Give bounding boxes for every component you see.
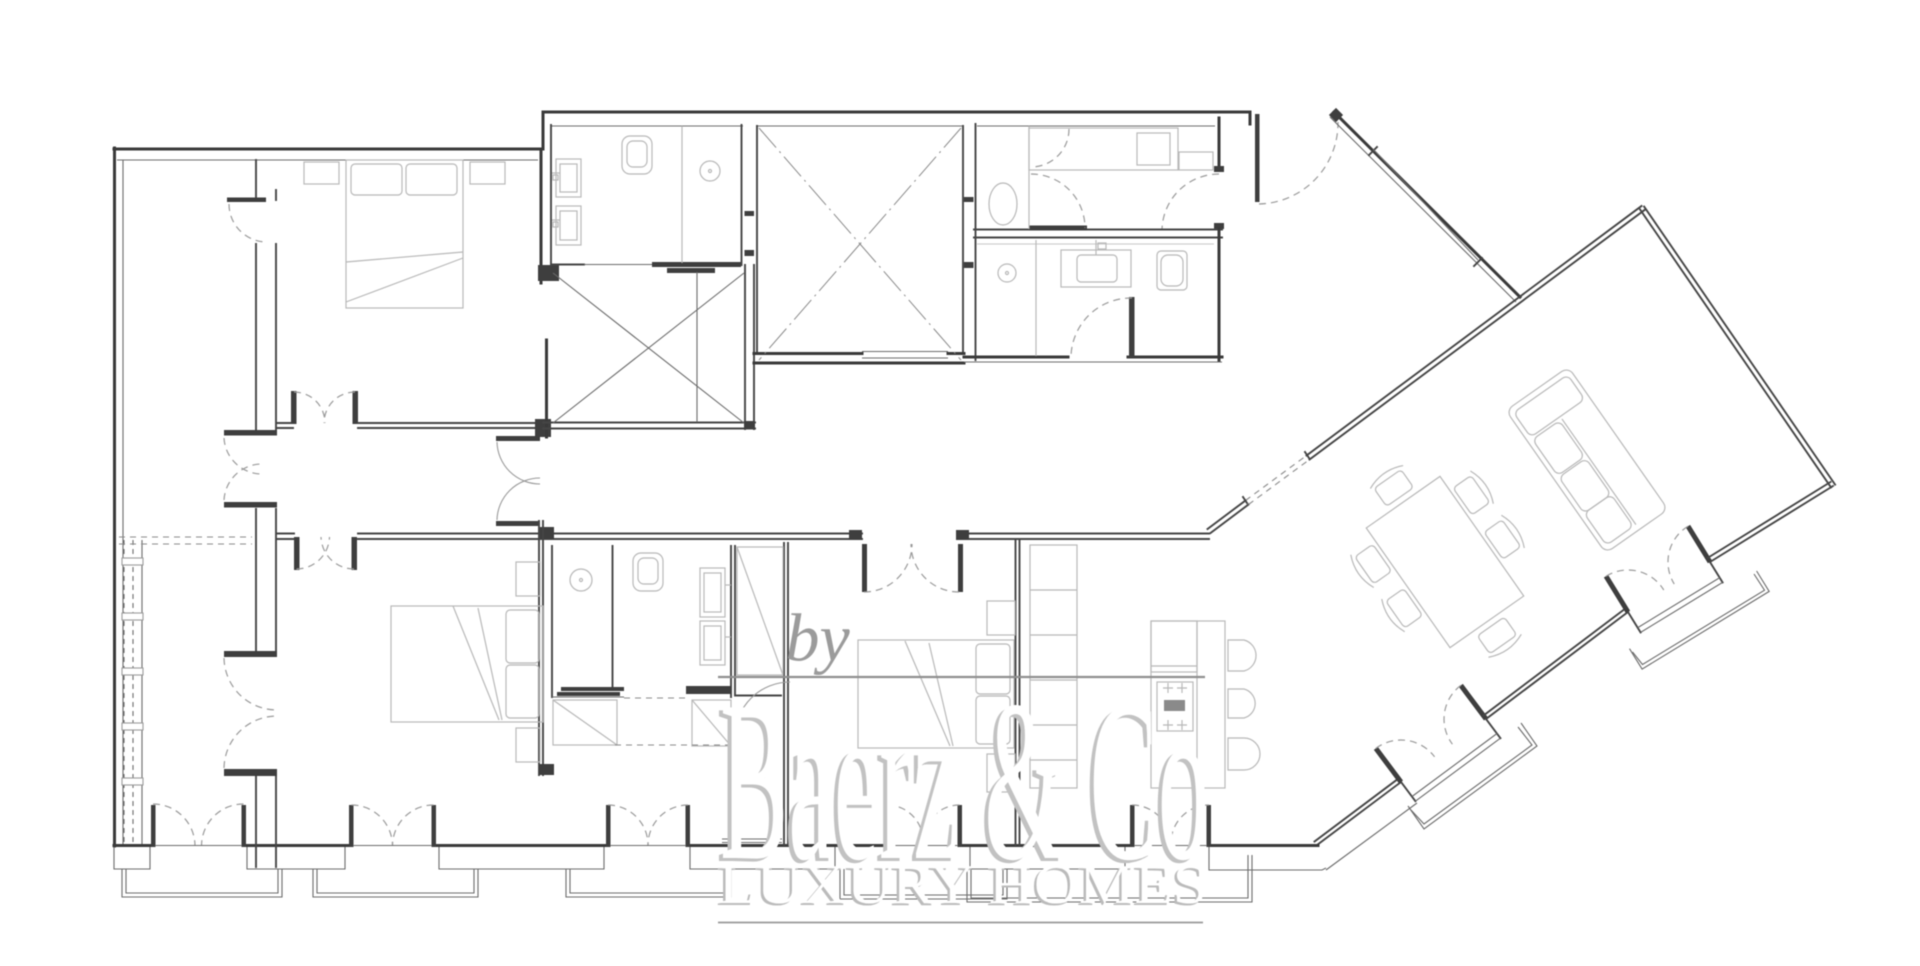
svg-text:LUXURY HOMES: LUXURY HOMES	[719, 854, 1208, 916]
